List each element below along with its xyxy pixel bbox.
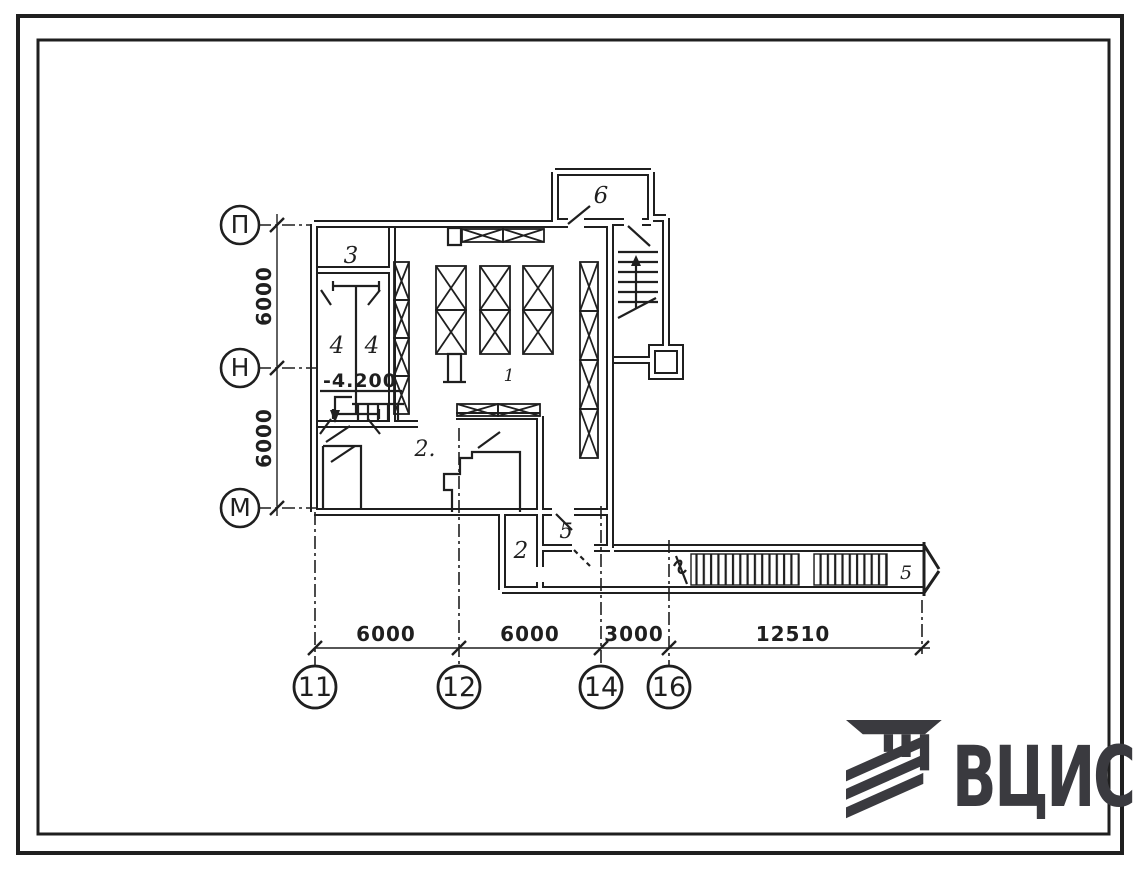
- vdim-6000-top: 6000: [252, 266, 276, 326]
- axis-label-12: 12: [442, 672, 476, 703]
- hdim-6000-a: 6000: [356, 622, 416, 646]
- vcis-logo-wordmark-wrap: ВЦИС: [952, 729, 1134, 827]
- stair-door-leaf: [628, 226, 650, 246]
- room-label-2-annex: 2: [513, 538, 529, 564]
- floor-plan-svg: П Н М 11 12 14 16 6000 6000 6000 6000 30…: [0, 0, 1139, 869]
- walls: [314, 172, 924, 590]
- axis-label-n: Н: [231, 353, 250, 382]
- emblem-roof: [846, 720, 942, 734]
- room-label-2-main: 2.: [414, 437, 436, 462]
- elevation-arrow: [335, 397, 352, 411]
- walls-outline: [314, 172, 924, 590]
- tunnel-tread-group-1: [691, 554, 799, 585]
- wall-pier: [448, 228, 461, 245]
- plan-texts: П Н М 11 12 14 16 6000 6000 6000 6000 30…: [229, 183, 912, 703]
- room4-leader-lines: [320, 290, 380, 434]
- tunnel-break-mark: [674, 556, 687, 584]
- hdim-3000: 3000: [604, 622, 664, 646]
- axis-label-11: 11: [298, 672, 332, 703]
- closet-door-leaves: [326, 426, 355, 462]
- tunnel-treads: [691, 554, 887, 585]
- room-label-6: 6: [594, 183, 609, 209]
- room-label-5-tunnel: 5: [900, 562, 912, 584]
- thin-details: [320, 206, 939, 596]
- tunnel-tip: [924, 542, 939, 596]
- column-stub: [443, 354, 466, 382]
- tunnel-tread-group-2: [814, 554, 887, 585]
- vcis-logo-emblem: [846, 720, 942, 818]
- scanned-drawing-page: П Н М 11 12 14 16 6000 6000 6000 6000 30…: [0, 0, 1139, 869]
- hdim-12510: 12510: [756, 622, 831, 646]
- axis-label-p: П: [231, 210, 250, 239]
- room-label-5-annex: 5: [559, 519, 572, 543]
- axis-label-14: 14: [584, 672, 618, 703]
- vcis-logo-wordmark: ВЦИС: [952, 729, 1134, 827]
- vdim-6000-bottom: 6000: [252, 408, 276, 468]
- elevation-mark: -4.200: [323, 370, 397, 392]
- axis-label-m: М: [229, 493, 251, 522]
- room-label-4-left: 4: [329, 333, 345, 359]
- hdim-6000-b: 6000: [500, 622, 560, 646]
- frame-inner: [38, 40, 1109, 834]
- vcis-logo: ВЦИС: [846, 720, 1134, 827]
- room-label-4-right: 4: [364, 333, 380, 359]
- room-label-3: 3: [344, 243, 359, 269]
- frame-outer: [18, 16, 1122, 853]
- room-label-1: 1: [504, 366, 515, 386]
- page-frame: [18, 16, 1122, 853]
- stepped-enclosure: [444, 452, 520, 512]
- stairwell-arrow-head: [631, 255, 641, 266]
- annex-door-leaf: [574, 550, 590, 566]
- axis-label-16: 16: [652, 672, 686, 703]
- equipment-hatching: [394, 229, 598, 458]
- stepped-door-leaf: [478, 432, 500, 448]
- walls-core: [314, 172, 924, 590]
